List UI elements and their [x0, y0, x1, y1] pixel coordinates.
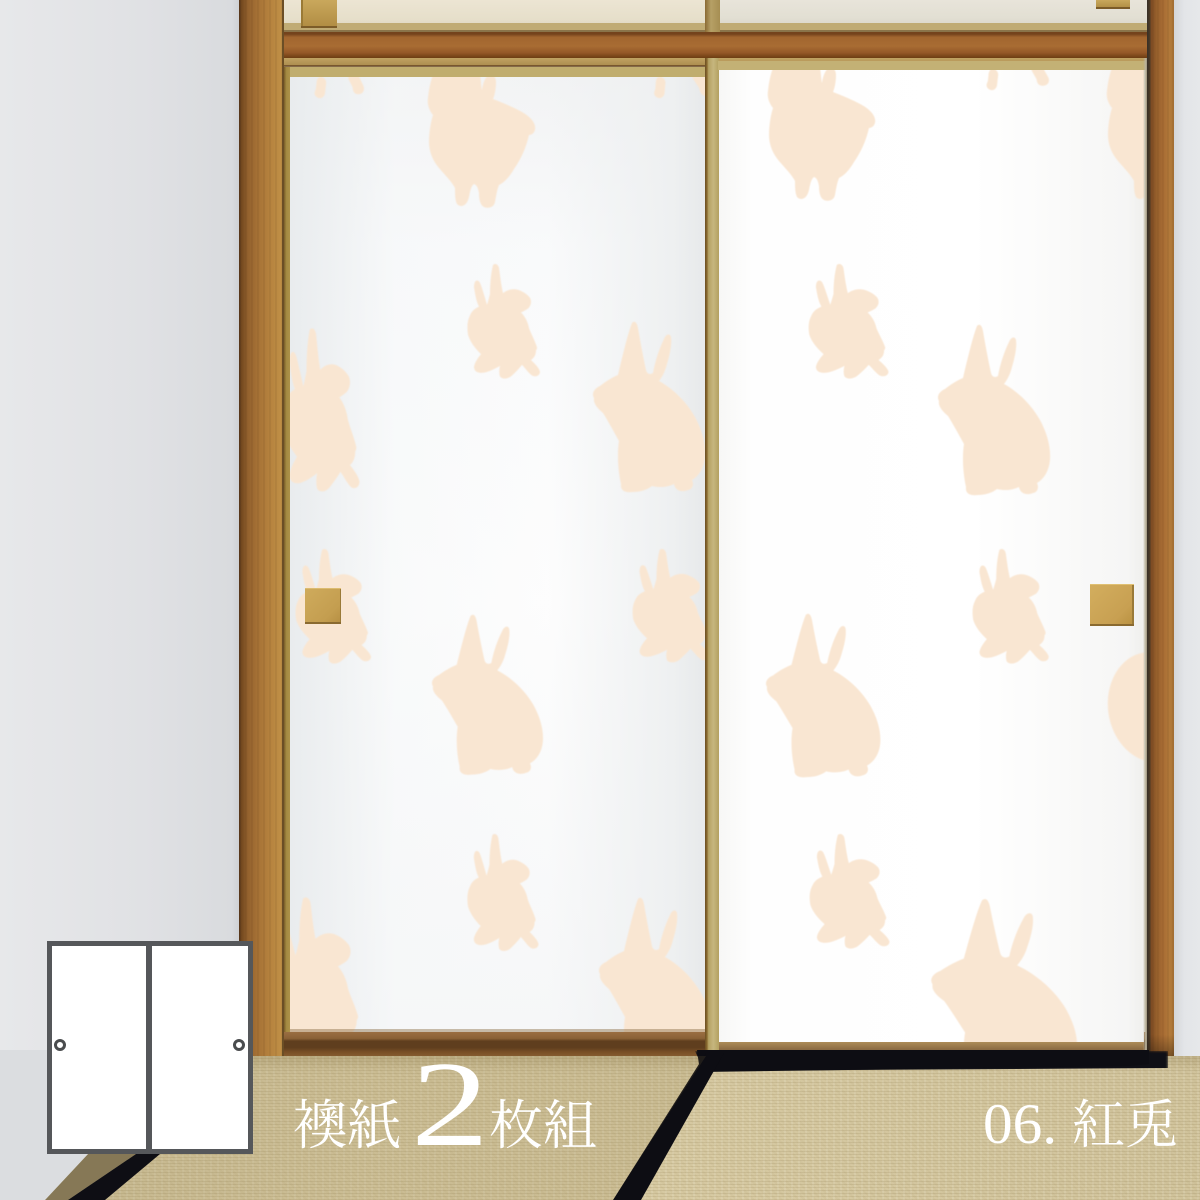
svg-text:06.: 06.	[983, 1092, 1057, 1156]
svg-text:2: 2	[411, 1037, 489, 1172]
